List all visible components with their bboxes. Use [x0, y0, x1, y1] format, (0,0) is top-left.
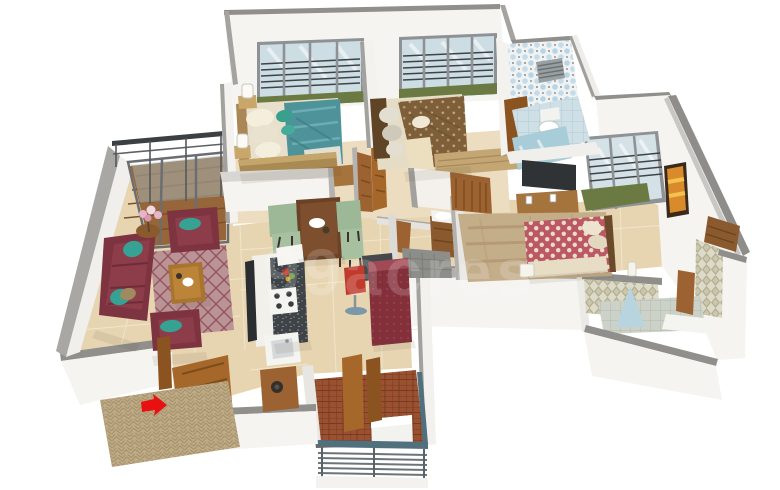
svg-text:99acres: 99acres	[263, 235, 537, 309]
